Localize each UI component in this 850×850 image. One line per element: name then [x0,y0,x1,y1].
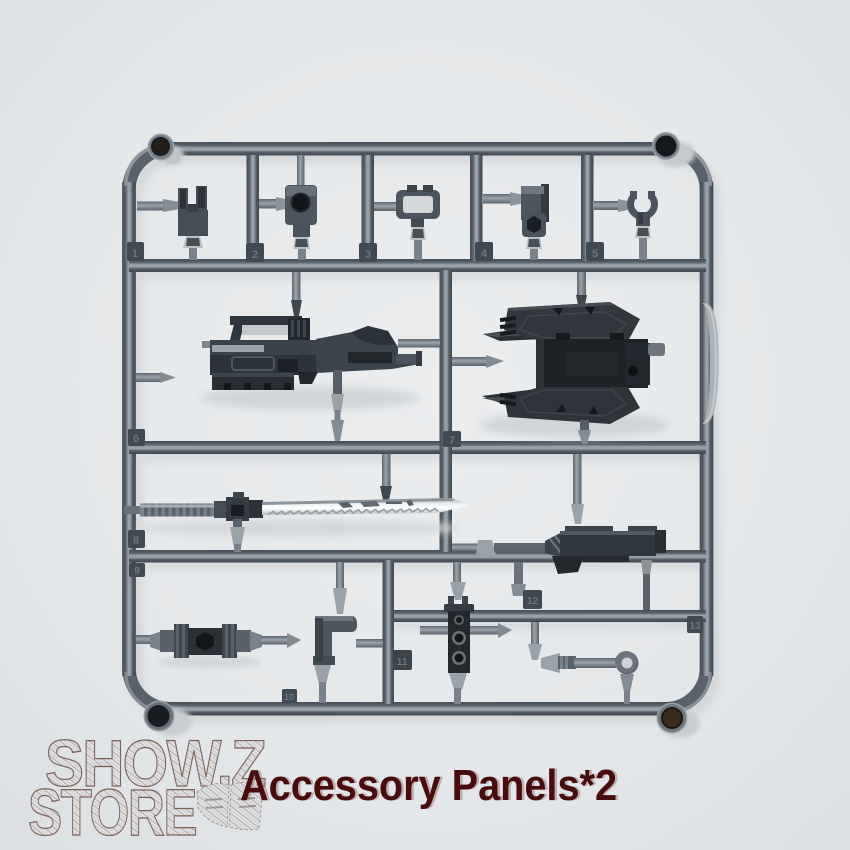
svg-text:8: 8 [133,535,139,547]
svg-text:2: 2 [252,249,258,261]
svg-text:4: 4 [481,248,488,260]
svg-text:5: 5 [592,248,598,260]
svg-text:11: 11 [397,657,408,668]
svg-text:STORE: STORE [28,775,196,849]
svg-text:3: 3 [365,249,371,261]
svg-text:12: 12 [527,596,539,607]
svg-text:Accessory Panels*2: Accessory Panels*2 [240,761,617,810]
svg-text:1: 1 [132,248,138,260]
svg-text:9: 9 [134,566,140,577]
svg-text:13: 13 [689,621,701,632]
svg-text:10: 10 [284,692,294,702]
svg-text:6: 6 [133,433,139,445]
svg-text:7: 7 [449,435,455,447]
